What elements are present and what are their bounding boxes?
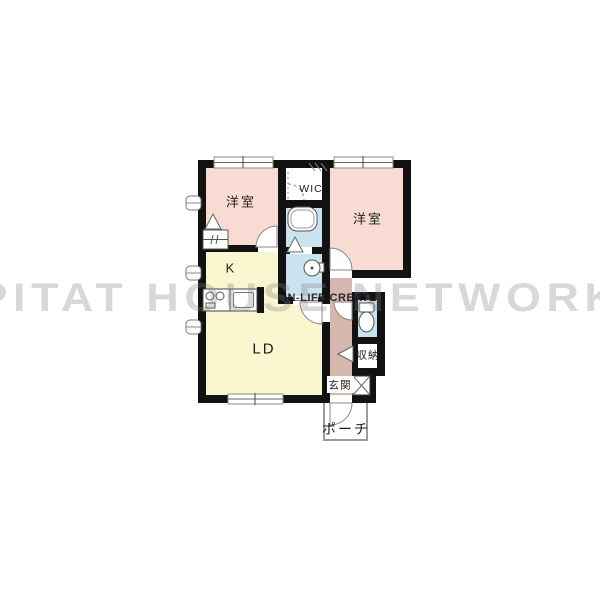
window-icon xyxy=(334,156,393,168)
label-bedroom-left: 洋室 xyxy=(226,192,256,211)
label-porch: ポーチ xyxy=(322,419,370,439)
door-arc-bedroom-left xyxy=(256,226,277,247)
bathtub-icon xyxy=(288,207,317,231)
closet-icon xyxy=(203,214,228,249)
floor-plan: 洋室 洋室 WIC K LD 玄関 収納 ポーチ PITAT HOUSE NET… xyxy=(0,0,600,600)
storage-door-icon xyxy=(338,346,353,362)
shoe-box-icon xyxy=(353,376,370,395)
bath-door-icon xyxy=(287,237,303,252)
window-icon xyxy=(228,393,283,405)
label-wic: WIC xyxy=(299,183,322,195)
label-storage: 収納 xyxy=(357,348,380,363)
small-window-icon xyxy=(186,196,201,210)
label-entrance: 玄関 xyxy=(329,378,352,393)
washbasin-icon xyxy=(304,260,324,276)
door-arc-bedroom-right xyxy=(330,248,352,270)
label-kitchen: K xyxy=(226,261,237,276)
sub-watermark: IN-LIFE CREATE xyxy=(284,292,377,304)
small-window-icon xyxy=(186,320,201,334)
window-icon xyxy=(214,156,273,168)
label-bedroom-right: 洋室 xyxy=(353,209,383,228)
label-living-dining: LD xyxy=(252,341,275,358)
